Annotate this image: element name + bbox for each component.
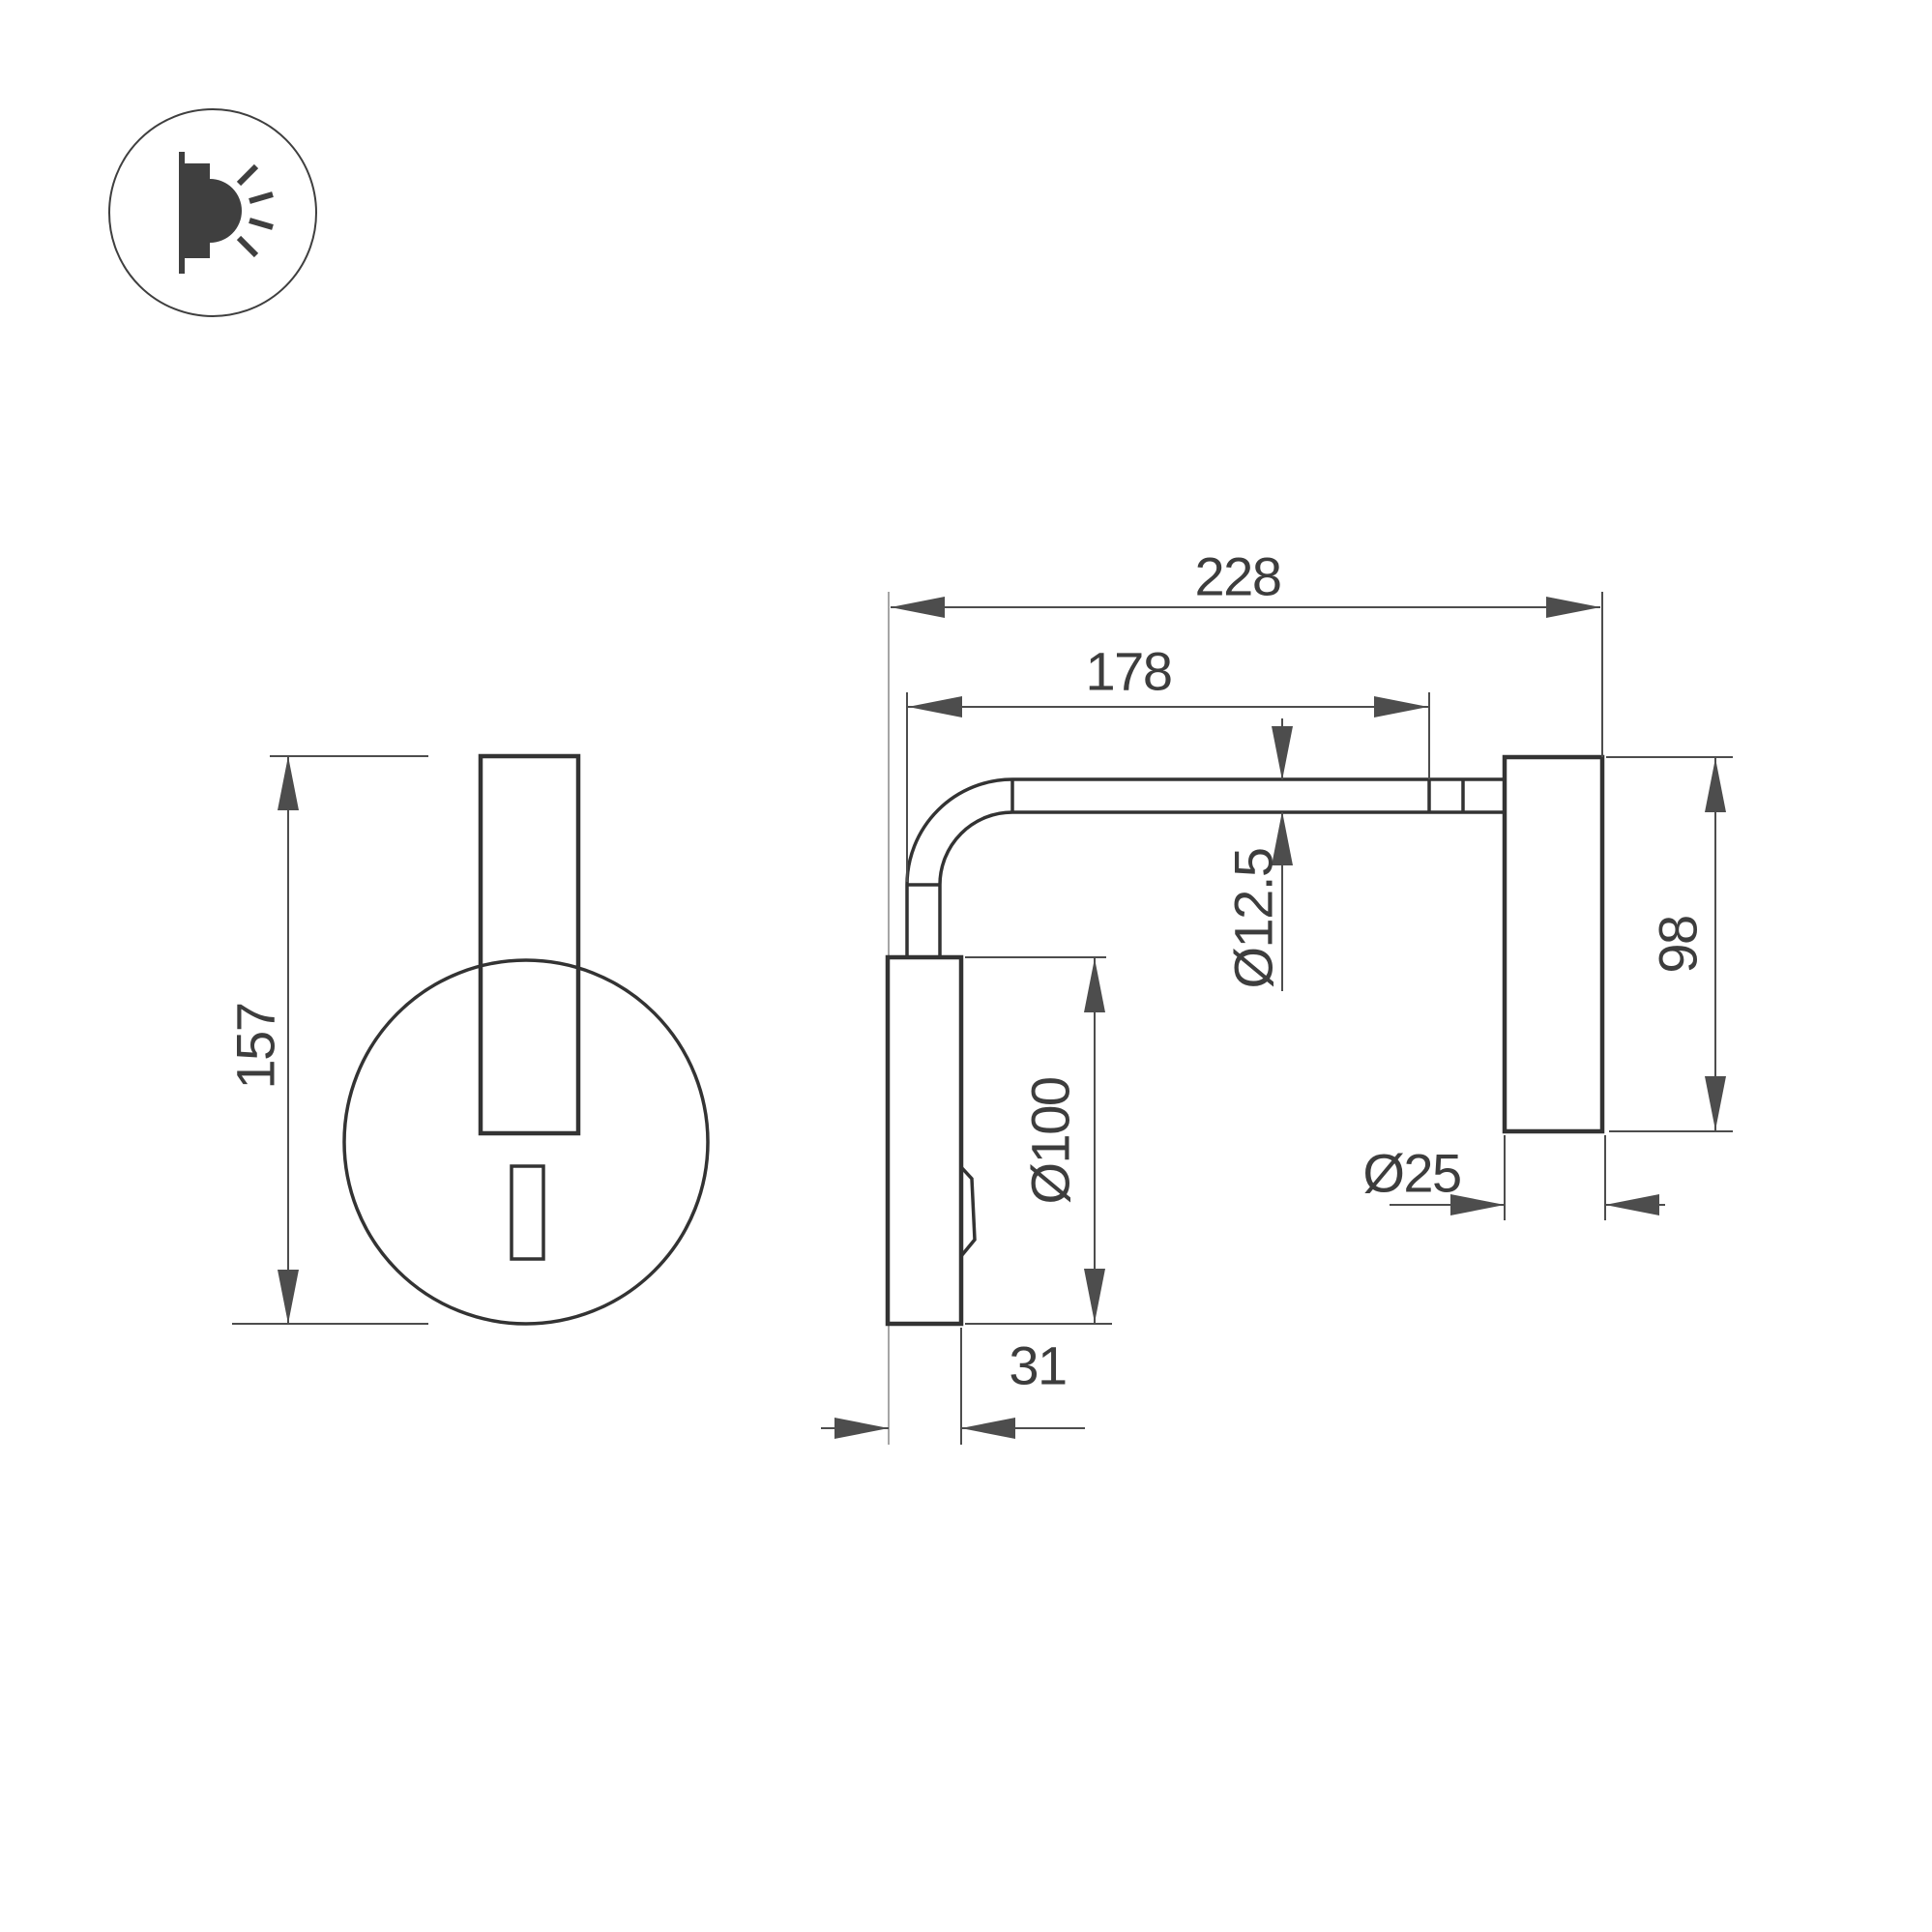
dim-25-arrow-right <box>1605 1194 1659 1215</box>
front-base-plate-circle <box>344 960 708 1324</box>
dim-157-arrow-top <box>278 756 299 810</box>
dim-100: Ø100 <box>965 957 1112 1324</box>
dim-157-arrow-bottom <box>278 1270 299 1324</box>
dim-98: 98 <box>1606 757 1733 1131</box>
dim-98-label: 98 <box>1648 916 1709 973</box>
dim-100-arrow-top <box>1084 958 1105 1012</box>
dim-12-5-label: Ø12.5 <box>1223 848 1284 988</box>
icon-light-dome <box>210 179 242 243</box>
dim-31-arrow-left <box>834 1418 889 1439</box>
side-lamp-head <box>1505 757 1602 1131</box>
dim-178-arrow-right <box>1374 696 1428 717</box>
dim-98-arrow-top <box>1705 758 1726 812</box>
dim-100-label: Ø100 <box>1020 1078 1081 1205</box>
elbow-outer-arc <box>907 779 1012 885</box>
dim-25-label: Ø25 <box>1362 1143 1460 1204</box>
dim-178-arrow-left <box>908 696 962 717</box>
dim-100-arrow-bottom <box>1084 1269 1105 1323</box>
front-lamp-body <box>481 756 578 1133</box>
dim-228: 228 <box>891 546 1602 757</box>
dim-31-label: 31 <box>1009 1335 1066 1396</box>
dim-31-arrow-right <box>961 1418 1015 1439</box>
dim-31: 31 <box>821 1328 1085 1445</box>
dim-98-arrow-bottom <box>1705 1076 1726 1130</box>
dim-157: 157 <box>225 756 428 1324</box>
elbow-inner-arc <box>940 812 1012 885</box>
dim-178: 178 <box>907 641 1429 882</box>
side-arm-tube <box>907 779 1505 957</box>
side-base-body <box>888 957 961 1324</box>
dimension-drawing: 157 228 <box>0 0 1932 1932</box>
dim-25: Ø25 <box>1362 1135 1665 1220</box>
wall-light-icon <box>109 109 316 316</box>
dim-228-arrow-right <box>1546 597 1600 618</box>
icon-light-rays <box>239 166 273 255</box>
dim-178-label: 178 <box>1086 641 1172 702</box>
dim-12-5-arrow-top <box>1272 726 1293 780</box>
front-switch <box>512 1166 543 1259</box>
dim-228-arrow-left <box>891 597 945 618</box>
drawing-canvas: 157 228 <box>0 0 1932 1932</box>
side-view: 228 178 Ø12.5 98 <box>821 546 1733 1445</box>
front-view: 157 <box>225 756 708 1324</box>
icon-lamp-body <box>185 163 210 258</box>
dim-12-5: Ø12.5 <box>1223 718 1293 991</box>
dim-228-label: 228 <box>1195 546 1281 607</box>
dim-157-label: 157 <box>225 1004 286 1090</box>
